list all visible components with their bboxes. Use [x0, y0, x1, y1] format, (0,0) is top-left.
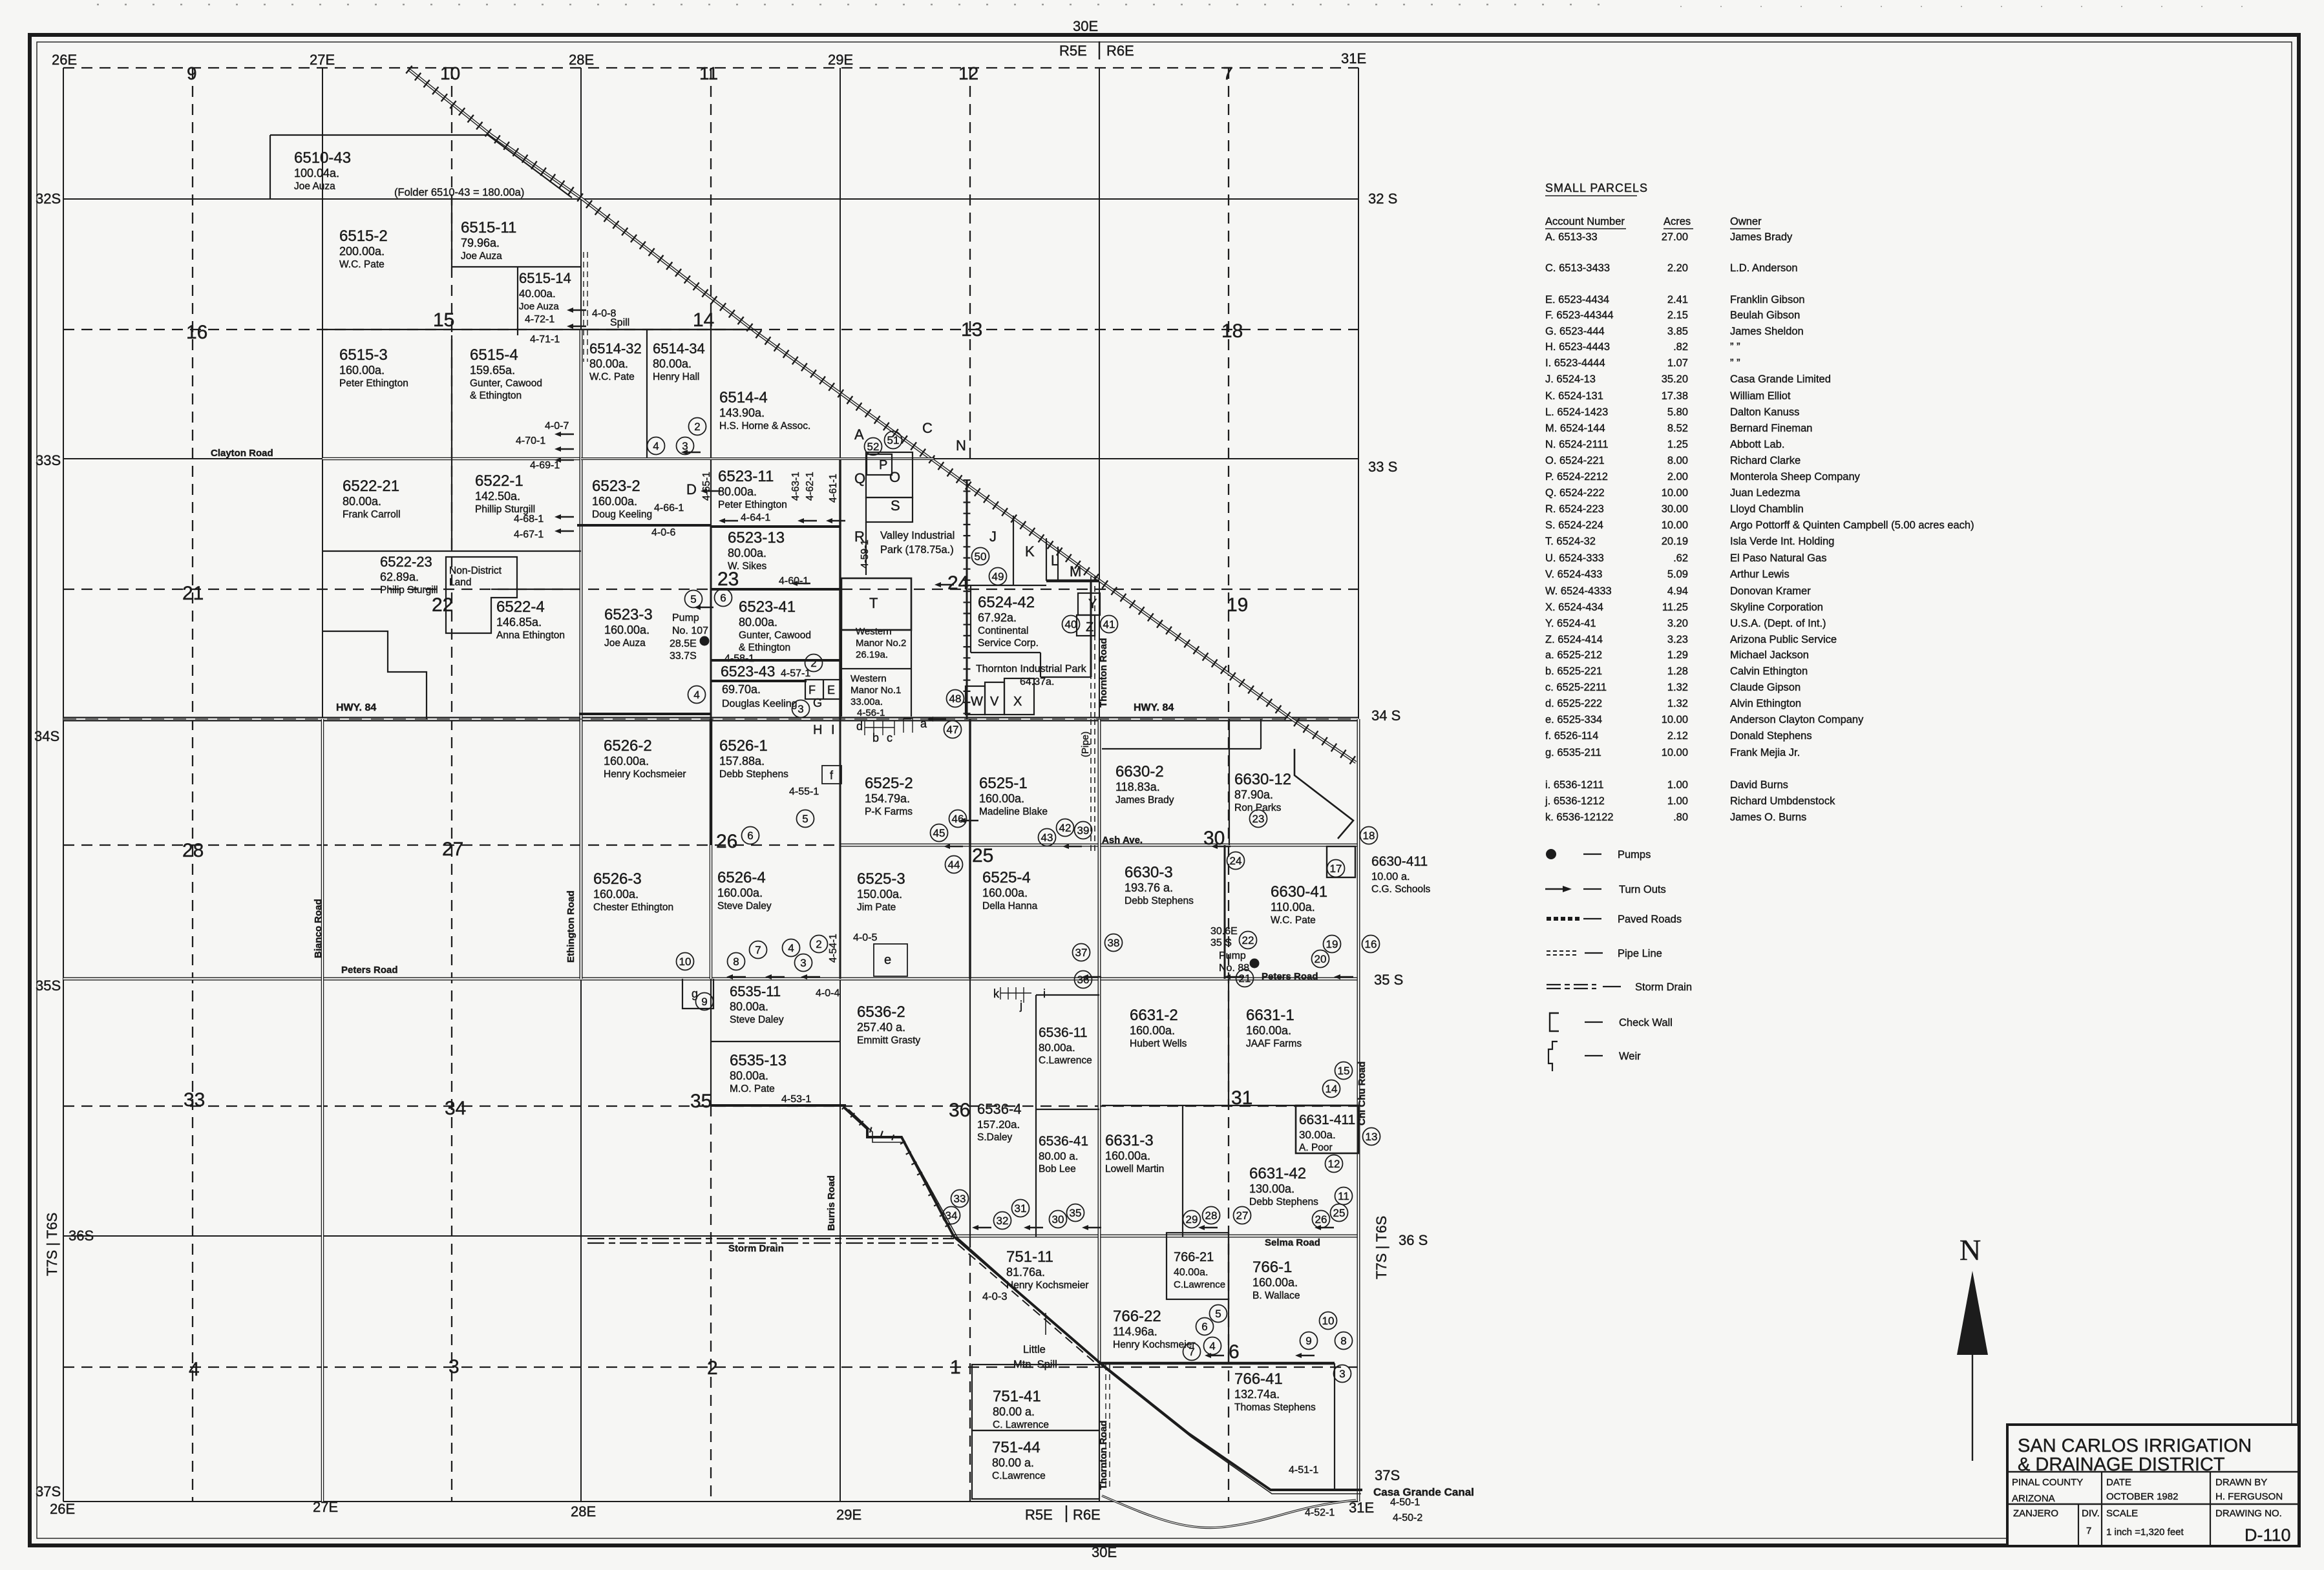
svg-text:Richard Clarke: Richard Clarke: [1730, 455, 1801, 466]
svg-text:4-56-1: 4-56-1: [857, 707, 885, 718]
svg-text:M.O. Pate: M.O. Pate: [730, 1083, 775, 1094]
svg-text:29: 29: [1186, 1213, 1198, 1226]
svg-text:4-0-3: 4-0-3: [982, 1291, 1008, 1303]
svg-text:Steve Daley: Steve Daley: [717, 901, 772, 912]
svg-text:24: 24: [1230, 855, 1242, 867]
svg-text:34S: 34S: [34, 728, 59, 744]
svg-text:6523-11: 6523-11: [718, 468, 774, 485]
svg-text:13: 13: [1366, 1131, 1378, 1143]
svg-text:27E: 27E: [310, 52, 335, 68]
svg-text:31: 31: [1231, 1087, 1252, 1109]
svg-text:b. 6525-221: b. 6525-221: [1545, 665, 1602, 677]
svg-text:F: F: [808, 684, 816, 696]
svg-text:80.00a.: 80.00a.: [739, 616, 777, 629]
svg-text:36S: 36S: [69, 1228, 94, 1244]
svg-text:N: N: [956, 437, 966, 454]
svg-text:45: 45: [933, 827, 945, 839]
svg-text:9: 9: [1305, 1335, 1311, 1347]
svg-text:193.76 a.: 193.76 a.: [1125, 881, 1173, 894]
svg-text:Little: Little: [1023, 1344, 1046, 1355]
svg-text:Gunter, Cawood: Gunter, Cawood: [739, 630, 811, 641]
svg-text:Frank Carroll: Frank Carroll: [343, 509, 401, 520]
svg-text:23: 23: [717, 569, 739, 590]
svg-text:8: 8: [1340, 1335, 1346, 1347]
svg-text:Steve Daley: Steve Daley: [730, 1014, 784, 1025]
svg-text:154.79a.: 154.79a.: [865, 792, 910, 805]
svg-text:27: 27: [1236, 1209, 1249, 1222]
svg-text:W.C. Pate: W.C. Pate: [589, 372, 635, 382]
svg-text:S: S: [891, 497, 900, 514]
svg-text:U. 6524-333: U. 6524-333: [1545, 552, 1604, 564]
svg-text:a: a: [920, 717, 927, 730]
svg-text:& Ethington: & Ethington: [739, 642, 790, 653]
svg-text:R5E: R5E: [1025, 1507, 1053, 1523]
svg-text:6526-3: 6526-3: [593, 870, 642, 888]
svg-text:160.00a.: 160.00a.: [604, 755, 649, 768]
svg-text:El Paso Natural Gas: El Paso Natural Gas: [1730, 552, 1826, 564]
svg-text:Gunter, Cawood: Gunter, Cawood: [470, 378, 542, 389]
svg-text:JAAF Farms: JAAF Farms: [1246, 1038, 1302, 1049]
svg-text:62.89a.: 62.89a.: [380, 570, 419, 583]
svg-text:36: 36: [949, 1100, 970, 1121]
svg-text:Anna Ethington: Anna Ethington: [496, 630, 565, 641]
svg-text:32 S: 32 S: [1368, 191, 1397, 207]
svg-text:6631-1: 6631-1: [1246, 1007, 1294, 1024]
svg-text:6515-2: 6515-2: [339, 227, 388, 245]
svg-text:6525-4: 6525-4: [982, 869, 1031, 886]
svg-text:17.38: 17.38: [1662, 390, 1688, 402]
svg-text:c. 6525-2211: c. 6525-2211: [1545, 682, 1607, 693]
svg-text:6522-21: 6522-21: [343, 477, 399, 495]
svg-text:Selma Road: Selma Road: [1265, 1237, 1320, 1248]
svg-text:i. 6536-1211: i. 6536-1211: [1545, 779, 1604, 791]
svg-text:O: O: [889, 469, 900, 485]
svg-text:W.C. Pate: W.C. Pate: [339, 259, 385, 270]
svg-text:Della Hanna: Della Hanna: [982, 901, 1038, 912]
svg-text:751-44: 751-44: [992, 1439, 1041, 1456]
svg-text:118.83a.: 118.83a.: [1115, 780, 1160, 793]
svg-text:114.96a.: 114.96a.: [1113, 1325, 1157, 1338]
svg-text:7: 7: [2086, 1525, 2091, 1536]
svg-text:40.00a.: 40.00a.: [519, 288, 556, 300]
svg-text:Pumps: Pumps: [1618, 849, 1651, 861]
svg-text:H: H: [813, 723, 822, 737]
svg-text:6630-12: 6630-12: [1234, 771, 1291, 788]
svg-text:C.G. Schools: C.G. Schools: [1371, 884, 1431, 895]
svg-text:(Pipe): (Pipe): [1080, 731, 1091, 757]
svg-text:4-66-1: 4-66-1: [654, 503, 684, 514]
svg-text:g. 6535-211: g. 6535-211: [1545, 747, 1601, 759]
svg-text:6523-3: 6523-3: [604, 606, 653, 623]
svg-text:Michael Jackson: Michael Jackson: [1730, 649, 1809, 661]
svg-text:Thornton Road: Thornton Road: [1098, 1421, 1109, 1490]
svg-text:44: 44: [948, 859, 960, 871]
svg-text:8.52: 8.52: [1667, 423, 1688, 434]
svg-text:11: 11: [1338, 1190, 1349, 1202]
svg-text:6: 6: [720, 592, 726, 604]
svg-text:3: 3: [800, 957, 806, 969]
svg-text:” ”: ” ”: [1730, 341, 1740, 353]
svg-text:6524-42: 6524-42: [978, 594, 1035, 611]
svg-text:V. 6524-433: V. 6524-433: [1545, 569, 1602, 580]
svg-text:32S: 32S: [36, 191, 61, 207]
svg-text:26.19a.: 26.19a.: [856, 649, 888, 660]
svg-text:HWY. 84: HWY. 84: [336, 702, 376, 713]
svg-text:23: 23: [1252, 813, 1265, 825]
svg-text:Hubert Wells: Hubert Wells: [1130, 1038, 1187, 1049]
svg-text:Peters Road: Peters Road: [341, 965, 398, 976]
svg-text:Peter Ethington: Peter Ethington: [339, 378, 408, 389]
svg-text:4-71-1: 4-71-1: [530, 334, 560, 345]
svg-text:766-22: 766-22: [1113, 1308, 1161, 1325]
svg-text:P-K Farms: P-K Farms: [865, 806, 913, 817]
svg-text:80.00a.: 80.00a.: [343, 495, 381, 508]
svg-text:T. 6524-32: T. 6524-32: [1545, 536, 1596, 547]
svg-text:Land: Land: [449, 577, 471, 588]
svg-text:766-41: 766-41: [1234, 1370, 1283, 1388]
svg-text:Weir: Weir: [1619, 1051, 1641, 1062]
svg-text:k: k: [993, 987, 1000, 1000]
svg-text:DATE: DATE: [2106, 1477, 2131, 1488]
svg-text:33.00a.: 33.00a.: [850, 696, 883, 707]
svg-text:I. 6523-4444: I. 6523-4444: [1545, 357, 1605, 369]
svg-text:c: c: [887, 731, 893, 744]
svg-text:D: D: [686, 481, 697, 497]
svg-text:87.90a.: 87.90a.: [1234, 788, 1273, 801]
svg-text:6514-32: 6514-32: [589, 340, 642, 357]
svg-text:H. 6523-4443: H. 6523-4443: [1545, 341, 1610, 353]
svg-text:34 S: 34 S: [1371, 707, 1400, 724]
svg-text:4-50-2: 4-50-2: [1393, 1512, 1422, 1523]
svg-text:g: g: [692, 987, 698, 1000]
svg-text:26E: 26E: [50, 1501, 75, 1517]
svg-text:10: 10: [440, 63, 460, 83]
svg-text:37S: 37S: [1375, 1467, 1400, 1483]
svg-text:Juan Ledezma: Juan Ledezma: [1730, 487, 1801, 499]
svg-text:N. 6524-2111: N. 6524-2111: [1545, 439, 1609, 450]
svg-text:6526-1: 6526-1: [719, 737, 768, 755]
svg-text:HWY. 84: HWY. 84: [1134, 702, 1174, 713]
svg-text:OCTOBER 1982: OCTOBER 1982: [2106, 1491, 2178, 1502]
svg-text:766-1: 766-1: [1252, 1259, 1292, 1276]
svg-text:35 S: 35 S: [1374, 972, 1403, 988]
svg-text:5.09: 5.09: [1667, 569, 1688, 580]
svg-text:52: 52: [867, 441, 880, 453]
svg-text:4-51-1: 4-51-1: [1289, 1465, 1318, 1476]
svg-text:40.00a.: 40.00a.: [1174, 1267, 1208, 1278]
svg-text:Anderson Clayton Company: Anderson Clayton Company: [1730, 714, 1864, 726]
svg-text:10.00: 10.00: [1662, 487, 1688, 499]
svg-text:Lowell Martin: Lowell Martin: [1105, 1164, 1164, 1175]
svg-text:27: 27: [442, 839, 463, 860]
svg-text:257.40 a.: 257.40 a.: [857, 1021, 905, 1034]
svg-text:Joe Auza: Joe Auza: [461, 251, 502, 262]
svg-text:M: M: [1070, 563, 1081, 580]
svg-text:18: 18: [1221, 320, 1243, 342]
svg-text:6526-2: 6526-2: [604, 737, 652, 755]
svg-text:i: i: [1043, 987, 1046, 1000]
svg-text:Bianco Road: Bianco Road: [313, 899, 324, 958]
svg-text:110.00a.: 110.00a.: [1271, 901, 1315, 914]
svg-text:SAN CARLOS IRRIGATION: SAN CARLOS IRRIGATION: [2018, 1436, 2252, 1456]
svg-text:D-110: D-110: [2245, 1525, 2291, 1545]
svg-text:4-69-1: 4-69-1: [530, 460, 560, 471]
svg-text:Frank Mejia Jr.: Frank Mejia Jr.: [1730, 747, 1800, 759]
svg-text:R: R: [854, 529, 865, 545]
svg-text:26E: 26E: [52, 52, 77, 68]
svg-text:Doug Keeling: Doug Keeling: [592, 509, 652, 520]
svg-text:5: 5: [802, 813, 808, 825]
svg-text:10: 10: [679, 956, 692, 968]
svg-text:21: 21: [182, 583, 204, 604]
svg-text:80.00 a.: 80.00 a.: [992, 1456, 1034, 1469]
svg-text:6630-41: 6630-41: [1271, 883, 1327, 901]
svg-text:Arizona Public Service: Arizona Public Service: [1730, 634, 1837, 645]
svg-text:2: 2: [810, 657, 816, 669]
svg-text:R. 6524-223: R. 6524-223: [1545, 503, 1604, 515]
svg-text:T7S | T6S: T7S | T6S: [1373, 1216, 1389, 1279]
svg-text:Isla Verde Int. Holding: Isla Verde Int. Holding: [1730, 536, 1834, 547]
svg-text:J: J: [989, 529, 997, 545]
svg-text:Check Wall: Check Wall: [1619, 1017, 1673, 1029]
svg-text:67.92a.: 67.92a.: [978, 611, 1017, 624]
svg-text:3.20: 3.20: [1667, 618, 1688, 629]
svg-text:G: G: [813, 696, 822, 709]
svg-text:2.41: 2.41: [1667, 294, 1688, 306]
svg-text:2: 2: [694, 421, 700, 433]
svg-text:6535-11: 6535-11: [730, 983, 781, 1000]
svg-text:10.00: 10.00: [1662, 714, 1688, 726]
svg-text:8: 8: [733, 956, 739, 968]
svg-text:4-65-1: 4-65-1: [701, 472, 712, 501]
svg-text:Henry Hall: Henry Hall: [653, 372, 699, 382]
svg-text:6523-2: 6523-2: [592, 477, 640, 495]
svg-text:80.00a.: 80.00a.: [730, 1000, 768, 1013]
svg-text:Manor No.2: Manor No.2: [856, 638, 906, 649]
svg-text:Claude Gipson: Claude Gipson: [1730, 682, 1801, 693]
svg-text:Turn Outs: Turn Outs: [1619, 884, 1666, 895]
svg-text:Acres: Acres: [1664, 216, 1691, 227]
svg-text:4-0-7: 4-0-7: [545, 421, 569, 432]
svg-text:30.00: 30.00: [1662, 503, 1688, 515]
svg-text:R6E: R6E: [1073, 1507, 1101, 1523]
svg-text:C. 6513-3433: C. 6513-3433: [1545, 262, 1610, 274]
svg-text:80.00a.: 80.00a.: [718, 485, 757, 498]
svg-text:35S: 35S: [36, 978, 61, 994]
svg-text:16: 16: [186, 322, 207, 343]
svg-text:6522-4: 6522-4: [496, 598, 545, 616]
svg-text:B. Wallace: B. Wallace: [1252, 1290, 1300, 1301]
svg-text:Monterola Sheep Company: Monterola Sheep Company: [1730, 471, 1861, 483]
svg-text:1.32: 1.32: [1667, 698, 1688, 709]
svg-text:4-0-4: 4-0-4: [816, 988, 840, 999]
svg-text:S. 6524-224: S. 6524-224: [1545, 519, 1603, 531]
svg-text:4-61-1: 4-61-1: [828, 474, 839, 503]
svg-text:W.C. Pate: W.C. Pate: [1271, 915, 1316, 926]
svg-text:80.00a.: 80.00a.: [589, 357, 628, 370]
svg-text:1.28: 1.28: [1667, 665, 1688, 677]
svg-text:80.00 a.: 80.00 a.: [993, 1405, 1035, 1418]
svg-text:Bob Lee: Bob Lee: [1039, 1164, 1076, 1175]
svg-text:69.70a.: 69.70a.: [722, 683, 761, 696]
svg-text:Joe Auza: Joe Auza: [519, 301, 559, 312]
svg-text:Thornton Industrial Park: Thornton Industrial Park: [976, 664, 1087, 675]
svg-text:Jim Pate: Jim Pate: [857, 902, 896, 913]
svg-text:Franklin Gibson: Franklin Gibson: [1730, 294, 1805, 306]
svg-text:Peters Road: Peters Road: [1262, 971, 1318, 982]
svg-text:6523-43: 6523-43: [721, 663, 775, 680]
svg-text:W: W: [971, 695, 983, 709]
svg-text:A. Poor: A. Poor: [1299, 1142, 1333, 1153]
svg-text:27.00: 27.00: [1662, 231, 1688, 243]
svg-text:20.19: 20.19: [1662, 536, 1688, 547]
svg-text:L.D. Anderson: L.D. Anderson: [1730, 262, 1798, 274]
svg-text:81.76a.: 81.76a.: [1006, 1266, 1045, 1279]
svg-text:39: 39: [1077, 824, 1090, 837]
svg-text:2.15: 2.15: [1667, 309, 1688, 321]
svg-text:7: 7: [1223, 63, 1233, 83]
svg-text:Y: Y: [1088, 597, 1097, 611]
svg-text:PINAL COUNTY: PINAL COUNTY: [2012, 1477, 2083, 1488]
svg-text:L: L: [1051, 552, 1059, 569]
svg-text:6515-3: 6515-3: [339, 346, 388, 364]
svg-text:4-53-1: 4-53-1: [781, 1094, 811, 1105]
svg-text:Debb Stephens: Debb Stephens: [719, 769, 788, 780]
svg-text:6: 6: [1229, 1341, 1240, 1363]
svg-text:e: e: [884, 953, 891, 967]
svg-text:29E: 29E: [828, 52, 853, 68]
svg-text:Pump: Pump: [672, 612, 699, 623]
svg-text:SMALL PARCELS: SMALL PARCELS: [1545, 182, 1648, 194]
svg-text:DRAWING NO.: DRAWING NO.: [2215, 1508, 2282, 1519]
svg-text:11.25: 11.25: [1662, 602, 1688, 613]
svg-text:8.00: 8.00: [1667, 455, 1688, 466]
svg-text:Manor No.1: Manor No.1: [850, 685, 901, 696]
svg-text:Lloyd Chamblin: Lloyd Chamblin: [1730, 503, 1804, 515]
svg-text:36 S: 36 S: [1399, 1232, 1428, 1248]
svg-text:Casa Grande Limited: Casa Grande Limited: [1730, 373, 1831, 385]
svg-text:22: 22: [432, 594, 453, 616]
svg-text:Calvin Ethington: Calvin Ethington: [1730, 665, 1808, 677]
svg-text:16: 16: [1365, 938, 1377, 950]
svg-text:6536-2: 6536-2: [857, 1003, 905, 1021]
svg-text:33S: 33S: [36, 452, 61, 468]
svg-text:Storm Drain: Storm Drain: [1635, 981, 1692, 993]
svg-text:25: 25: [1333, 1207, 1346, 1219]
svg-text:50: 50: [975, 550, 987, 563]
svg-text:43: 43: [1041, 832, 1053, 844]
svg-text:100.04a.: 100.04a.: [294, 167, 339, 180]
svg-text:6630-2: 6630-2: [1115, 763, 1164, 780]
svg-text:C: C: [922, 420, 933, 436]
svg-text:1: 1: [950, 1357, 961, 1378]
svg-text:26: 26: [1315, 1213, 1327, 1226]
svg-text:& DRAINAGE DISTRICT: & DRAINAGE DISTRICT: [2018, 1454, 2225, 1475]
svg-text:James Brady: James Brady: [1115, 795, 1174, 806]
svg-text:33: 33: [184, 1089, 205, 1111]
svg-text:15: 15: [1338, 1065, 1350, 1077]
svg-text:4-62-1: 4-62-1: [805, 472, 816, 501]
svg-text:K: K: [1025, 543, 1035, 560]
svg-text:4.94: 4.94: [1667, 585, 1688, 597]
svg-text:1.29: 1.29: [1667, 649, 1688, 661]
svg-text:N: N: [1960, 1233, 1981, 1266]
svg-text:James O. Burns: James O. Burns: [1730, 811, 1806, 823]
svg-text:A. 6513-33: A. 6513-33: [1545, 231, 1598, 243]
svg-text:4-60-1: 4-60-1: [779, 576, 808, 587]
svg-text:5: 5: [1215, 1308, 1221, 1320]
svg-text:34: 34: [445, 1098, 466, 1119]
svg-text:9: 9: [187, 63, 197, 83]
svg-text:S.Daley: S.Daley: [977, 1132, 1013, 1143]
svg-text:4-55-1: 4-55-1: [789, 786, 819, 797]
svg-text:33.7S: 33.7S: [670, 651, 697, 662]
svg-text:11: 11: [699, 63, 718, 83]
svg-text:6515-11: 6515-11: [461, 219, 516, 236]
svg-text:.62: .62: [1673, 552, 1688, 564]
svg-text:Emmitt Grasty: Emmitt Grasty: [857, 1035, 920, 1046]
svg-text:6523-13: 6523-13: [728, 529, 785, 547]
svg-text:1.07: 1.07: [1667, 357, 1688, 369]
svg-text:4-54-1: 4-54-1: [828, 934, 839, 963]
svg-text:4-0-6: 4-0-6: [651, 527, 675, 538]
svg-text:Ash Ave.: Ash Ave.: [1102, 835, 1143, 846]
svg-text:51: 51: [887, 434, 900, 446]
svg-text:6631-42: 6631-42: [1249, 1165, 1306, 1182]
svg-text:28E: 28E: [569, 52, 594, 68]
svg-text:30: 30: [1052, 1213, 1064, 1226]
svg-text:6536-41: 6536-41: [1039, 1134, 1088, 1149]
svg-text:1.25: 1.25: [1667, 439, 1688, 450]
svg-text:Arthur Lewis: Arthur Lewis: [1730, 569, 1790, 580]
svg-text:15: 15: [433, 309, 454, 331]
svg-text:6: 6: [747, 830, 753, 842]
svg-text:Joe Auza: Joe Auza: [604, 638, 646, 649]
svg-text:James Sheldon: James Sheldon: [1730, 326, 1804, 337]
svg-text:30E: 30E: [1073, 18, 1098, 34]
svg-text:6535-13: 6535-13: [730, 1052, 787, 1069]
svg-text:C.Lawrence: C.Lawrence: [1174, 1279, 1225, 1290]
svg-text:H.S. Horne & Assoc.: H.S. Horne & Assoc.: [719, 421, 810, 432]
svg-text:Argo Pottorff & Quinten Campbe: Argo Pottorff & Quinten Campbell (5.00 a…: [1730, 519, 1974, 531]
svg-text:Beulah Gibson: Beulah Gibson: [1730, 309, 1800, 321]
svg-text:C.Lawrence: C.Lawrence: [1039, 1055, 1092, 1066]
svg-text:4-57-1: 4-57-1: [781, 668, 810, 679]
svg-text:Skyline Corporation: Skyline Corporation: [1730, 602, 1823, 613]
svg-text:P. 6524-2212: P. 6524-2212: [1545, 471, 1608, 483]
svg-text:30E: 30E: [1092, 1544, 1117, 1560]
svg-text:Bernard Fineman: Bernard Fineman: [1730, 423, 1812, 434]
svg-text:159.65a.: 159.65a.: [470, 364, 515, 377]
svg-text:6515-4: 6515-4: [470, 346, 518, 364]
svg-text:C. Lawrence: C. Lawrence: [993, 1419, 1049, 1430]
svg-text:2.20: 2.20: [1667, 262, 1688, 274]
svg-text:Storm Drain: Storm Drain: [728, 1243, 784, 1254]
svg-text:30.6E: 30.6E: [1210, 926, 1238, 937]
svg-text:& Ethington: & Ethington: [470, 390, 522, 401]
svg-text:C.Lawrence: C.Lawrence: [992, 1471, 1046, 1481]
svg-text:A: A: [854, 426, 864, 443]
svg-text:Donald Stephens: Donald Stephens: [1730, 730, 1812, 742]
svg-text:Abbott Lab.: Abbott Lab.: [1730, 439, 1784, 450]
svg-text:Dalton Kanuss: Dalton Kanuss: [1730, 406, 1799, 418]
svg-text:Service Corp.: Service Corp.: [978, 638, 1039, 649]
svg-text:160.00a.: 160.00a.: [592, 495, 637, 508]
svg-text:47: 47: [947, 724, 959, 736]
svg-text:Casa Grande Canal: Casa Grande Canal: [1373, 1486, 1474, 1498]
svg-text:18: 18: [1363, 830, 1375, 842]
svg-text:33 S: 33 S: [1368, 459, 1397, 475]
